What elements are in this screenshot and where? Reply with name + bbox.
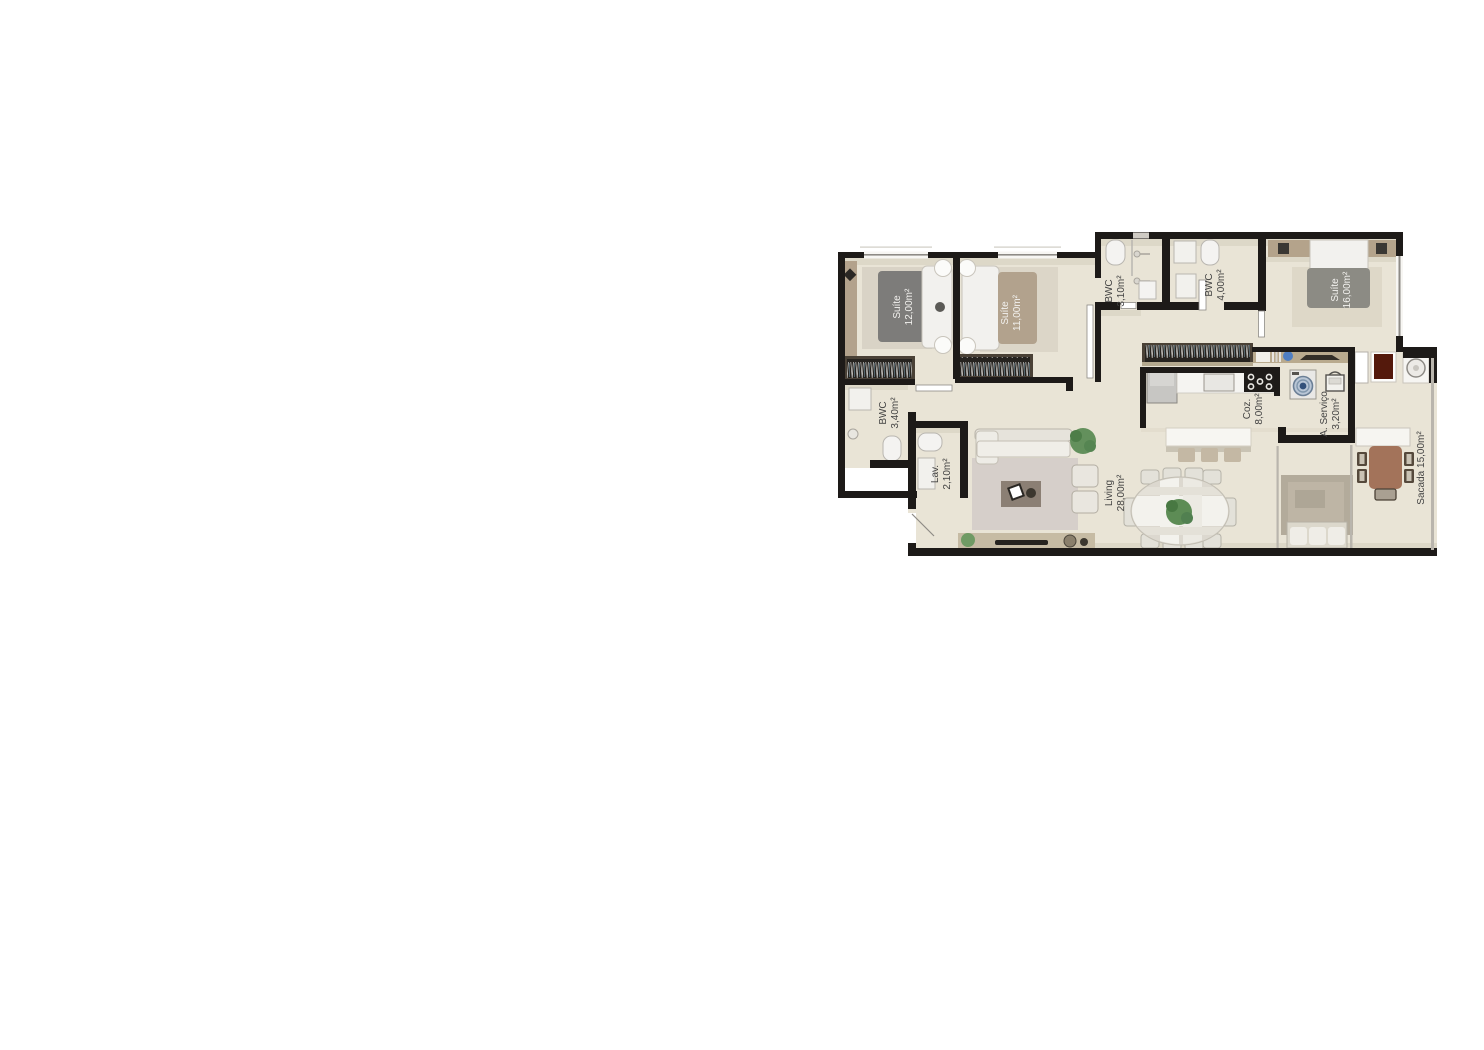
- svg-text:Living: Living: [1104, 480, 1115, 506]
- svg-text:Suíte: Suíte: [1000, 301, 1011, 325]
- svg-text:Lav.: Lav.: [930, 465, 941, 483]
- svg-text:3,40m²: 3,40m²: [890, 397, 901, 429]
- svg-text:BWC: BWC: [1204, 273, 1215, 296]
- svg-text:A. Serviço: A. Serviço: [1319, 391, 1330, 437]
- svg-text:Suíte: Suíte: [1330, 278, 1341, 302]
- svg-text:3,20m²: 3,20m²: [1331, 398, 1342, 430]
- svg-text:12,00m²: 12,00m²: [904, 288, 915, 325]
- svg-text:2,10m²: 2,10m²: [942, 458, 953, 490]
- svg-text:4,00m²: 4,00m²: [1216, 269, 1227, 301]
- svg-text:28,00m²: 28,00m²: [1116, 474, 1127, 511]
- svg-text:3,10m²: 3,10m²: [1116, 275, 1127, 307]
- svg-text:11,00m²: 11,00m²: [1012, 294, 1023, 331]
- svg-text:BWC: BWC: [878, 401, 889, 424]
- svg-text:Coz.: Coz.: [1242, 399, 1253, 420]
- svg-text:8,00m²: 8,00m²: [1254, 393, 1265, 425]
- svg-text:16,00m²: 16,00m²: [1342, 271, 1353, 308]
- svg-text:BWC: BWC: [1104, 279, 1115, 302]
- svg-text:Suíte: Suíte: [892, 295, 903, 319]
- svg-text:Sacada 15,00m²: Sacada 15,00m²: [1416, 431, 1427, 505]
